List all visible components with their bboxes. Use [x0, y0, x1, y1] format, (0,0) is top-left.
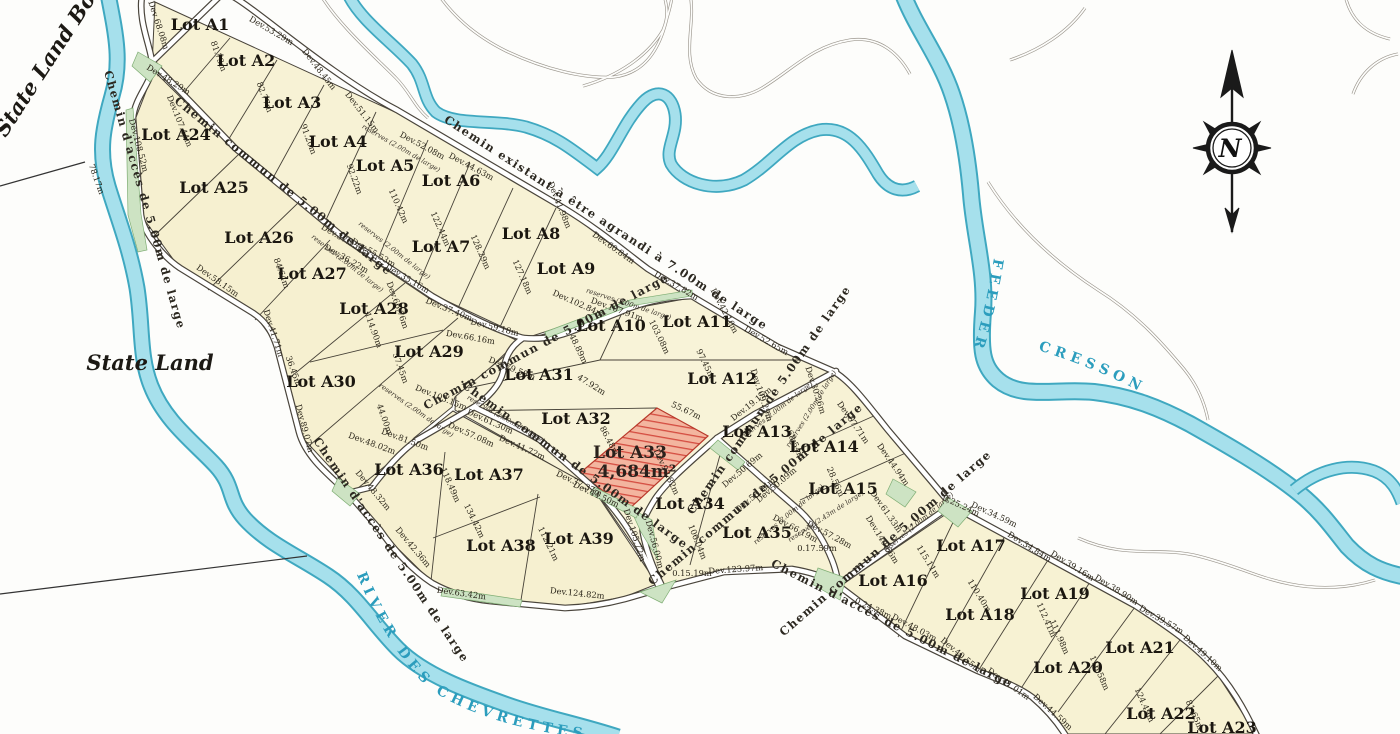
lot-a33-label: Lot A33: [593, 443, 667, 463]
lot-label-a18: Lot A18: [945, 605, 1015, 624]
lot-label-a8: Lot A8: [502, 224, 560, 243]
compass-rose: N: [1193, 50, 1271, 232]
lot-label-a23: Lot A23: [1187, 718, 1257, 734]
lot-label-a25: Lot A25: [179, 178, 249, 197]
lot-label-a9: Lot A9: [537, 259, 595, 278]
lot-label-a31: Lot A31: [504, 365, 574, 384]
lot-label-a6: Lot A6: [422, 171, 480, 190]
lot-label-a32: Lot A32: [541, 409, 611, 428]
lot-label-a17: Lot A17: [936, 536, 1006, 555]
feeder-cresson-river: [903, 0, 1400, 576]
lot-label-a28: Lot A28: [339, 299, 409, 318]
lot-label-a35: Lot A35: [722, 523, 792, 542]
lot-label-a5: Lot A5: [356, 156, 414, 175]
lot-label-a30: Lot A30: [286, 372, 356, 391]
lot-label-a36: Lot A36: [374, 460, 444, 479]
lot-label-a4: Lot A4: [309, 132, 367, 151]
lot-label-a2: Lot A2: [217, 51, 275, 70]
lot-label-a19: Lot A19: [1020, 584, 1090, 603]
lot-label-a13: Lot A13: [722, 422, 792, 441]
dimension-label: 0.15.19m: [672, 568, 712, 578]
lot-label-a16: Lot A16: [858, 571, 928, 590]
lot-label-a20: Lot A20: [1033, 658, 1103, 677]
plat-map-page: Dev 68.08mDev.53.29mDev.48.45mDev.51.15m…: [0, 0, 1400, 734]
lot-label-a29: Lot A29: [394, 342, 464, 361]
state-land-label: State Land: [86, 350, 213, 375]
lot-label-a38: Lot A38: [466, 536, 536, 555]
compass-north-letter: N: [1218, 134, 1243, 163]
lot-label-a39: Lot A39: [544, 529, 614, 548]
lot-label-a7: Lot A7: [412, 237, 470, 256]
lot-label-a21: Lot A21: [1105, 638, 1175, 657]
lot-a33-area: 4,684m²: [598, 462, 677, 482]
lot-label-a3: Lot A3: [263, 93, 321, 112]
lot-label-a24: Lot A24: [141, 125, 211, 144]
lot-label-a26: Lot A26: [224, 228, 294, 247]
dimension-label: 0.17.59m: [797, 543, 837, 553]
lot-label-a12: Lot A12: [687, 369, 757, 388]
lot-label-a11: Lot A11: [662, 312, 732, 331]
plat-map: Dev 68.08mDev.53.29mDev.48.45mDev.51.15m…: [0, 0, 1400, 734]
lot-label-a1: Lot A1: [171, 15, 229, 34]
state-land-boundary-label: State Land Bou: [0, 0, 109, 141]
lot-label-a14: Lot A14: [789, 437, 859, 456]
lot-label-a37: Lot A37: [454, 465, 524, 484]
dimension-label: Dev.53.29m: [248, 14, 296, 47]
lot-label-a10: Lot A10: [576, 316, 646, 335]
lot-label-a27: Lot A27: [277, 264, 347, 283]
lot-label-a34: Lot A34: [655, 494, 725, 513]
lot-label-a15: Lot A15: [808, 479, 878, 498]
lot-label-a22: Lot A22: [1126, 704, 1196, 723]
